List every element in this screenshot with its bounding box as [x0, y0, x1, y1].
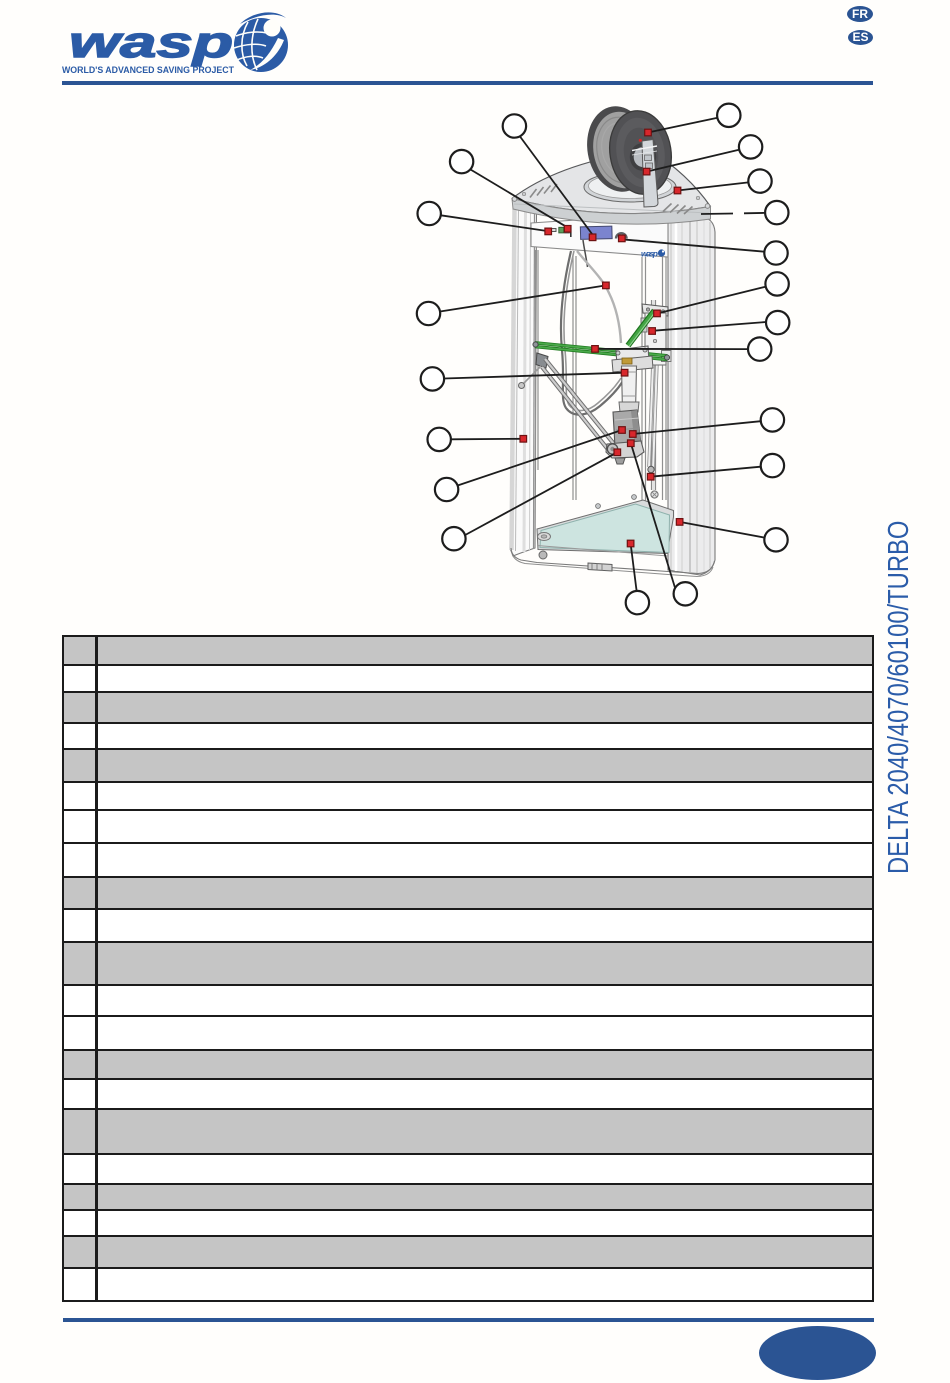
svg-text:wasp: wasp	[641, 249, 658, 259]
